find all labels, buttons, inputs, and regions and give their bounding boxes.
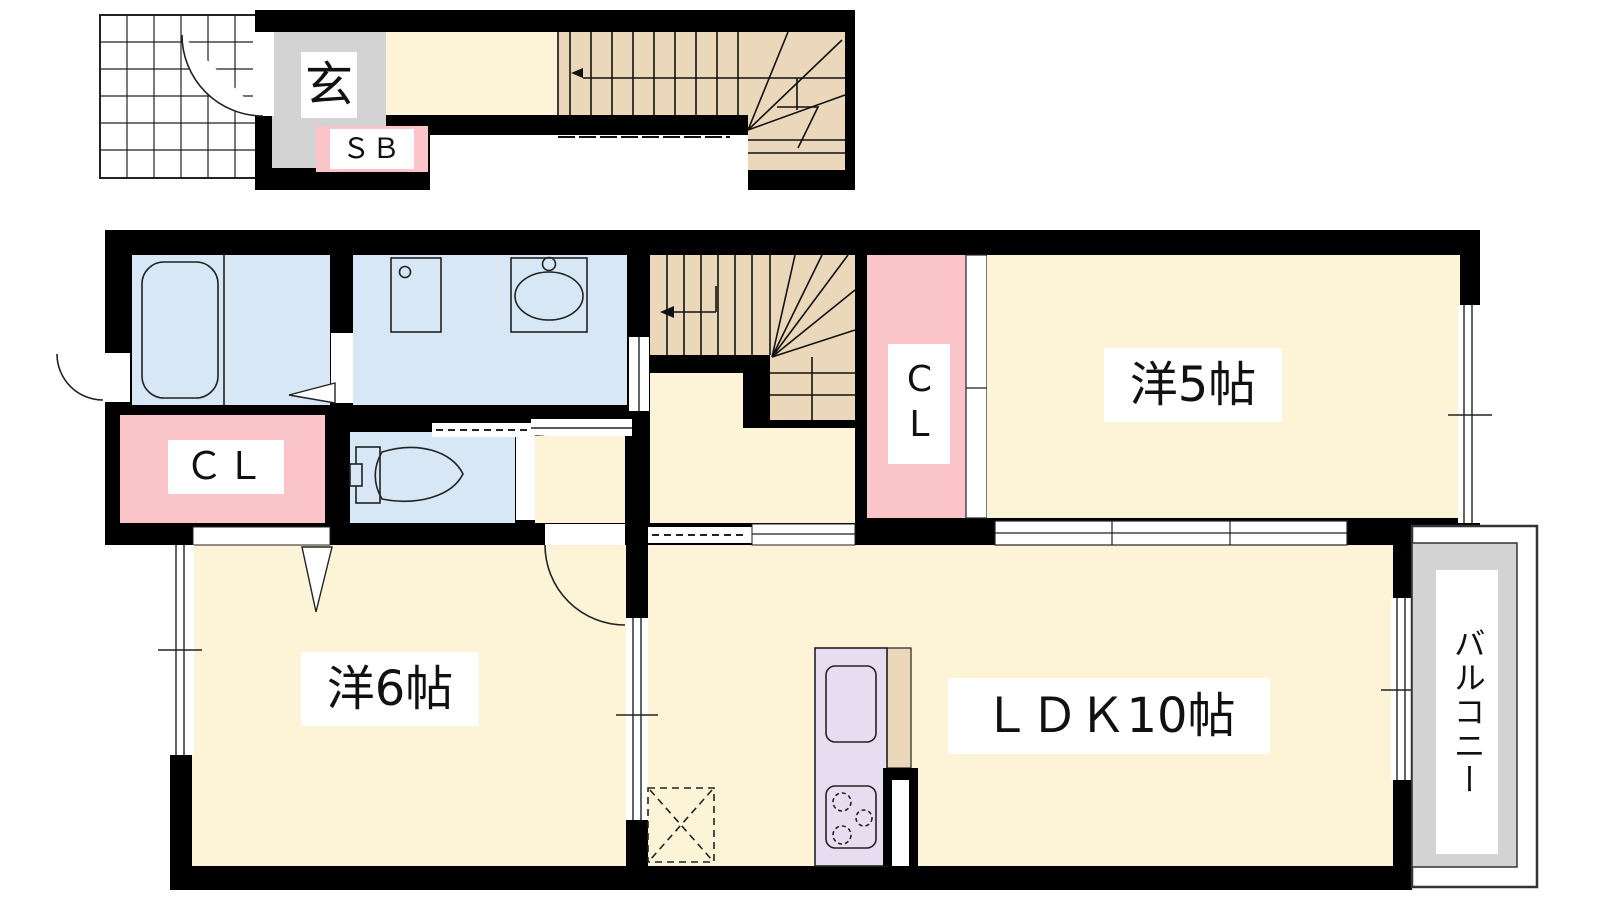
room5-label: 洋5帖 <box>1104 348 1282 422</box>
room6-door-gap <box>545 524 625 545</box>
shoe-box-label: ＳＢ <box>330 129 414 169</box>
washroom-opening-dashed <box>432 423 531 437</box>
toilet-door-gap <box>516 436 535 520</box>
closet-left-label: ＣＬ <box>168 440 284 494</box>
strip-notch <box>430 135 748 190</box>
room6-label: 洋6帖 <box>301 652 479 726</box>
hallway-2f-c <box>535 436 625 523</box>
hallway-2f-b <box>743 428 855 523</box>
floor-plan-canvas: 玄 ＳＢ ＣＬ CL 洋5帖 洋6帖 ＬＤＫ10帖 バルコニー <box>0 0 1600 900</box>
hallway-2f-a <box>650 373 743 523</box>
stairs-1f-run <box>558 32 748 115</box>
ldk-label: ＬＤＫ10帖 <box>948 678 1270 754</box>
balcony-label: バルコニー <box>1436 570 1498 854</box>
washroom-floor <box>353 255 627 405</box>
closet-center-door-strip <box>966 255 987 518</box>
kitchen-side-opening <box>892 780 909 866</box>
bathroom-window-arc <box>57 354 103 400</box>
entrance-label: 玄 <box>301 52 357 118</box>
kitchen-counter <box>887 648 911 768</box>
bathroom-window <box>103 353 130 402</box>
entrance-door-gap <box>253 32 274 116</box>
closet-center-label: CL <box>888 344 950 464</box>
hallway-1f-floor <box>386 32 558 115</box>
bathroom-floor <box>132 255 330 405</box>
room6-closet-opening <box>193 527 330 545</box>
